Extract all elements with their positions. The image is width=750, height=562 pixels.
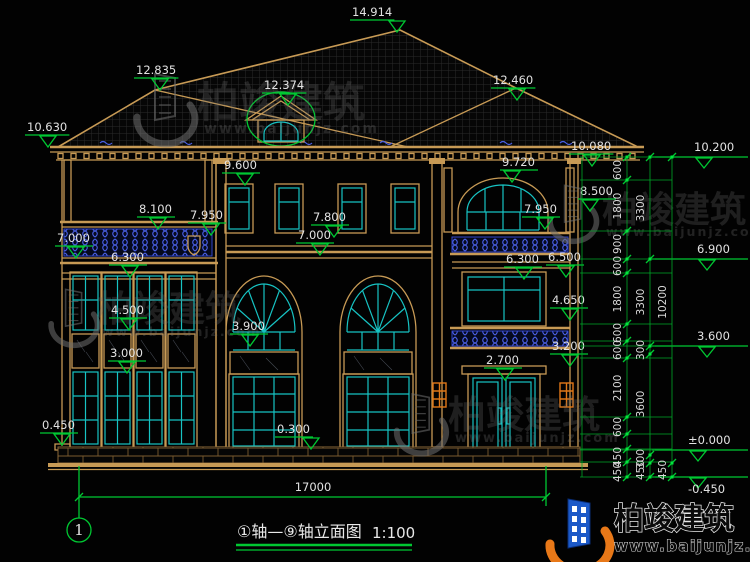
svg-text:3.200: 3.200 xyxy=(552,339,585,353)
elevation-marker: 3.900 xyxy=(230,319,268,346)
svg-text:0.300: 0.300 xyxy=(277,422,310,436)
svg-text:10.200: 10.200 xyxy=(694,140,734,154)
eave-fascia xyxy=(50,147,644,160)
svg-text:12.460: 12.460 xyxy=(493,73,533,87)
svg-text:2.700: 2.700 xyxy=(486,353,519,367)
svg-text:6.300: 6.300 xyxy=(111,250,144,264)
svg-text:300: 300 xyxy=(635,340,647,360)
svg-text:7.950: 7.950 xyxy=(190,208,223,222)
svg-text:4.650: 4.650 xyxy=(552,293,585,307)
cad-canvas: 柏竣建筑www.baijunjz.com柏竣建筑www.baijunjz.com… xyxy=(0,0,750,562)
svg-text:7.000: 7.000 xyxy=(57,231,90,245)
overall-width-dim: 17000 xyxy=(295,480,332,494)
center-facade xyxy=(213,158,445,448)
svg-text:www.baijunjz.com: www.baijunjz.com xyxy=(455,431,620,446)
svg-text:900: 900 xyxy=(612,234,624,254)
watermark: 柏竣建筑www.baijunjz.com xyxy=(51,289,262,345)
base-and-ground xyxy=(48,447,588,470)
elevation-marker: 10.630 xyxy=(25,120,69,147)
svg-text:8.100: 8.100 xyxy=(139,202,172,216)
svg-text:1800: 1800 xyxy=(612,193,624,220)
cad-elevation-drawing: 柏竣建筑www.baijunjz.com柏竣建筑www.baijunjz.com… xyxy=(0,0,750,562)
brand-logo-icon xyxy=(550,499,610,562)
svg-text:9.720: 9.720 xyxy=(502,155,535,169)
svg-text:6.900: 6.900 xyxy=(697,242,730,256)
svg-text:-0.450: -0.450 xyxy=(688,482,725,496)
svg-text:600: 600 xyxy=(612,256,624,276)
level-marker: 10.200 xyxy=(652,140,748,168)
svg-text:1800: 1800 xyxy=(612,286,624,313)
elevation-marker: 14.914 xyxy=(350,5,405,32)
svg-text:10.630: 10.630 xyxy=(27,120,67,134)
svg-text:7.950: 7.950 xyxy=(524,202,557,216)
svg-text:10200: 10200 xyxy=(657,285,669,318)
svg-text:3.900: 3.900 xyxy=(232,319,265,333)
drawing-title: ①轴—⑨轴立面图 1:100 xyxy=(236,522,415,550)
svg-text:450: 450 xyxy=(635,460,647,480)
footer-logo: 柏竣建筑 www.baijunjz.com xyxy=(550,499,750,562)
svg-text:www.baijunjz.com: www.baijunjz.com xyxy=(204,121,379,137)
svg-text:450: 450 xyxy=(657,460,669,480)
svg-text:3.000: 3.000 xyxy=(110,346,143,360)
level-marker: 3.600 xyxy=(652,329,748,357)
svg-text:0.450: 0.450 xyxy=(42,418,75,432)
svg-text:3300: 3300 xyxy=(635,195,647,222)
elevation-marker: 7.950 xyxy=(522,202,560,229)
svg-text:12.835: 12.835 xyxy=(136,63,176,77)
watermark: 柏竣建筑www.baijunjz.com xyxy=(397,393,620,453)
svg-text:14.914: 14.914 xyxy=(352,5,392,19)
svg-text:8.500: 8.500 xyxy=(580,184,613,198)
svg-text:6.300: 6.300 xyxy=(506,252,539,266)
elevation-marker: 6.300 xyxy=(504,252,542,279)
title-text: ①轴—⑨轴立面图 xyxy=(237,522,362,541)
elevation-marker: 9.600 xyxy=(222,158,260,185)
elevation-marker: 0.300 xyxy=(275,422,319,449)
level-marker: ±0.000 xyxy=(652,433,748,461)
svg-text:600: 600 xyxy=(612,340,624,360)
elevation-marker: 0.450 xyxy=(40,418,78,445)
svg-text:6.500: 6.500 xyxy=(548,250,581,264)
svg-text:3600: 3600 xyxy=(635,391,647,418)
elevation-marker: 2.700 xyxy=(484,353,522,380)
svg-text:3.600: 3.600 xyxy=(697,329,730,343)
svg-text:2100: 2100 xyxy=(612,375,624,402)
svg-text:10.080: 10.080 xyxy=(571,139,611,153)
svg-text:12.374: 12.374 xyxy=(264,78,304,92)
svg-text:±0.000: ±0.000 xyxy=(688,433,731,447)
svg-text:4.500: 4.500 xyxy=(111,303,144,317)
level-marker: 6.900 xyxy=(652,242,748,270)
svg-text:450: 450 xyxy=(612,462,624,482)
svg-text:7.800: 7.800 xyxy=(313,210,346,224)
svg-text:600: 600 xyxy=(612,417,624,437)
svg-text:9.600: 9.600 xyxy=(224,158,257,172)
brand-name: 柏竣建筑 xyxy=(614,502,734,537)
svg-text:7.000: 7.000 xyxy=(298,228,331,242)
title-scale: 1:100 xyxy=(372,524,415,542)
svg-text:600: 600 xyxy=(612,160,624,180)
svg-text:3300: 3300 xyxy=(635,289,647,316)
elevation-marker: 8.100 xyxy=(137,202,175,229)
axis-bubble-1: 1 xyxy=(74,521,84,539)
arched-window xyxy=(340,276,416,448)
brand-url: www.baijunjz.com xyxy=(614,537,750,555)
elevation-marker: 3.000 xyxy=(108,346,146,373)
